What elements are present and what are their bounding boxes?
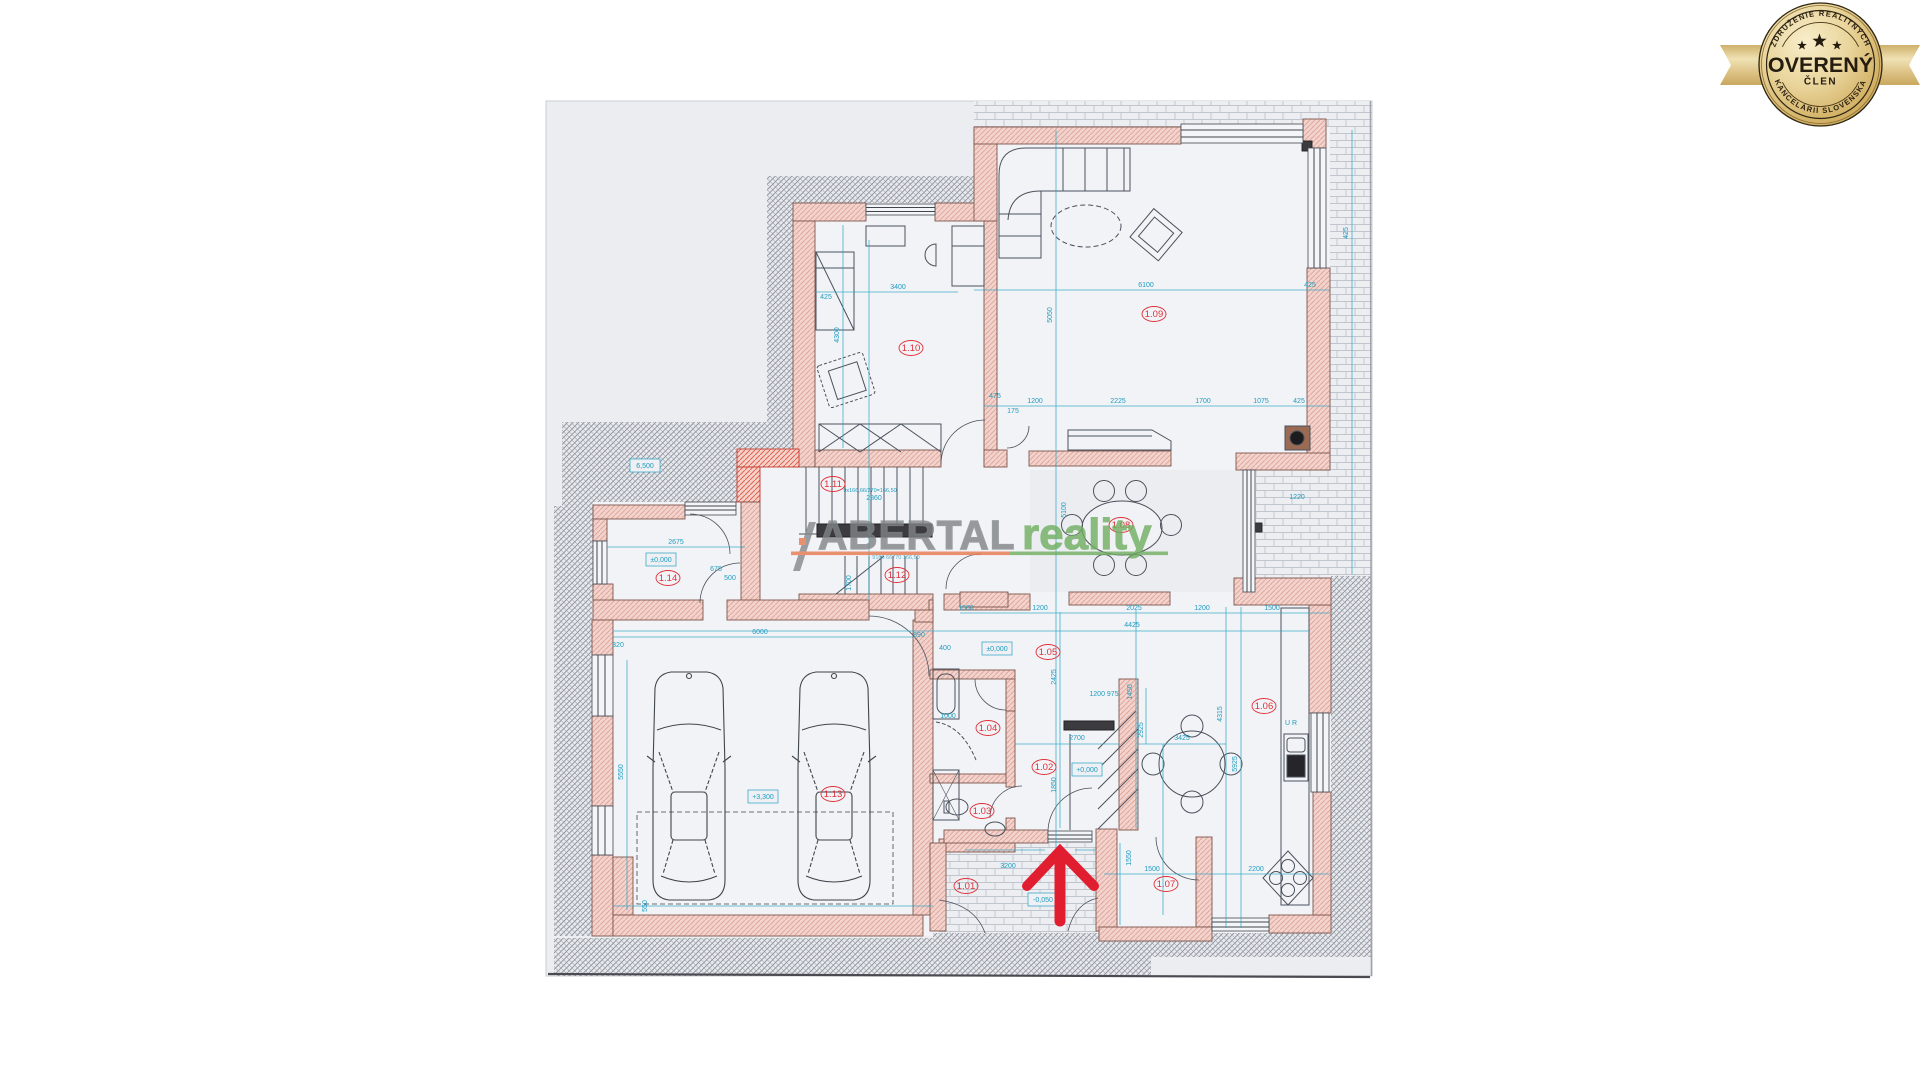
svg-text:9166 66770 166,50: 9166 66770 166,50: [872, 555, 919, 561]
svg-text:±0,000: ±0,000: [650, 557, 671, 564]
svg-text:2860: 2860: [866, 495, 882, 502]
svg-text:6,500: 6,500: [636, 463, 654, 470]
svg-text:1850: 1850: [1051, 777, 1058, 793]
svg-text:2925: 2925: [1138, 722, 1145, 738]
svg-text:1.03: 1.03: [973, 806, 992, 817]
svg-text:-0,050: -0,050: [1033, 897, 1053, 904]
svg-text:1.02: 1.02: [1035, 762, 1054, 773]
svg-text:ABERTAL: ABERTAL: [818, 512, 1015, 558]
svg-text:U R: U R: [1285, 720, 1297, 727]
svg-text:1.12: 1.12: [888, 570, 907, 581]
svg-text:475: 475: [989, 393, 1001, 400]
svg-text:6000: 6000: [752, 629, 768, 636]
svg-text:2025: 2025: [1126, 605, 1142, 612]
svg-text:1500: 1500: [1264, 605, 1280, 612]
svg-text:890: 890: [913, 632, 925, 639]
svg-text:1450: 1450: [1127, 684, 1134, 700]
svg-text:±0,000: ±0,000: [986, 646, 1007, 653]
svg-text:1.10: 1.10: [902, 343, 921, 354]
svg-text:4425: 4425: [1124, 622, 1140, 629]
svg-text:550: 550: [642, 900, 649, 912]
svg-text:1.09: 1.09: [1145, 309, 1164, 320]
svg-text:+0,000: +0,000: [1076, 767, 1098, 774]
svg-text:1.11: 1.11: [824, 479, 842, 490]
svg-text:1.07: 1.07: [1157, 879, 1176, 890]
svg-text:OVERENÝ: OVERENÝ: [1768, 52, 1873, 77]
svg-text:4300: 4300: [834, 327, 841, 343]
svg-text:4315: 4315: [1217, 706, 1224, 722]
svg-text:1.01: 1.01: [957, 881, 976, 892]
svg-text:1.06: 1.06: [1255, 701, 1274, 712]
svg-text:1700: 1700: [846, 575, 853, 591]
svg-text:1700: 1700: [1195, 398, 1211, 405]
svg-text:5550: 5550: [618, 764, 625, 780]
svg-text:5925: 5925: [1232, 756, 1239, 772]
svg-text:1000: 1000: [940, 713, 956, 720]
svg-text:ČLEN: ČLEN: [1804, 75, 1837, 88]
svg-text:400: 400: [939, 645, 951, 652]
svg-text:6100: 6100: [1138, 282, 1154, 289]
svg-text:675: 675: [710, 566, 722, 573]
svg-text:3400: 3400: [890, 284, 906, 291]
svg-text:2700: 2700: [1069, 735, 1085, 742]
svg-text:9x166,66/270=166,50: 9x166,66/270=166,50: [843, 488, 896, 494]
svg-text:175: 175: [1007, 408, 1019, 415]
svg-text:2225: 2225: [1110, 398, 1126, 405]
svg-text:1200: 1200: [1194, 605, 1210, 612]
svg-text:425: 425: [1304, 282, 1316, 289]
svg-text:425: 425: [820, 294, 832, 301]
svg-text:1500: 1500: [1144, 866, 1160, 873]
svg-text:425: 425: [1293, 398, 1305, 405]
svg-text:425: 425: [1343, 227, 1350, 239]
svg-text:1.13: 1.13: [824, 789, 843, 800]
svg-text:1075: 1075: [1253, 398, 1269, 405]
svg-text:3200: 3200: [1000, 863, 1016, 870]
svg-text:1.05: 1.05: [1039, 647, 1058, 658]
svg-text:1220: 1220: [1289, 494, 1305, 501]
svg-text:3425: 3425: [1174, 735, 1190, 742]
svg-text:2200: 2200: [1248, 866, 1264, 873]
svg-text:1550: 1550: [1126, 850, 1133, 866]
svg-text:1200 975: 1200 975: [1089, 691, 1118, 698]
svg-text:+3,300: +3,300: [752, 794, 774, 801]
svg-text:1500: 1500: [958, 605, 974, 612]
svg-text:1.14: 1.14: [659, 573, 678, 584]
svg-text:2425: 2425: [1051, 669, 1058, 685]
svg-text:1.04: 1.04: [979, 723, 998, 734]
svg-text:1200: 1200: [1027, 398, 1043, 405]
svg-text:320: 320: [612, 642, 624, 649]
svg-text:5050: 5050: [1047, 307, 1054, 323]
svg-text:1200: 1200: [1032, 605, 1048, 612]
svg-text:2675: 2675: [668, 539, 684, 546]
svg-text:500: 500: [724, 575, 736, 582]
